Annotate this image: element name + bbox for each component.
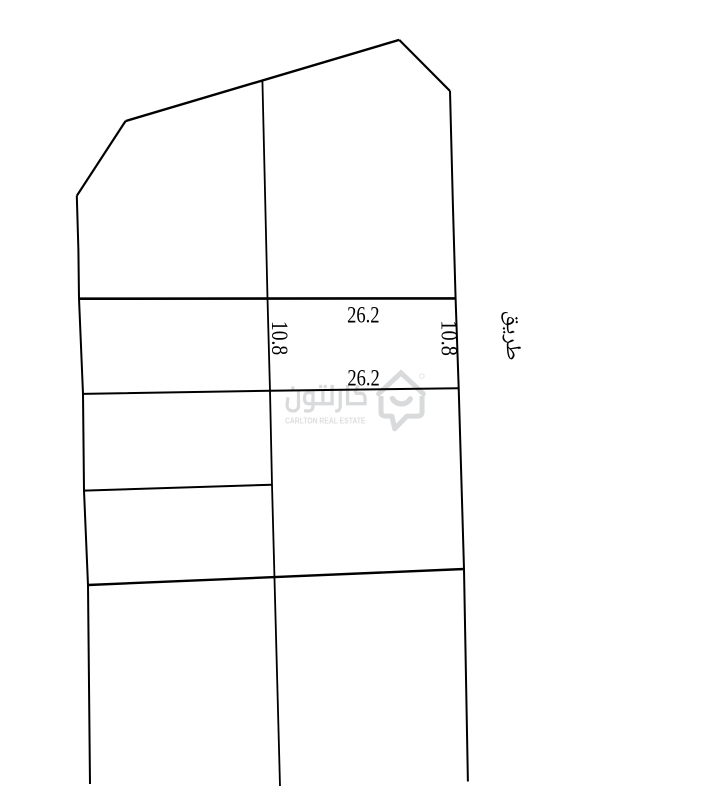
svg-text:10.8: 10.8: [435, 320, 461, 356]
svg-text:CARLTON REAL ESTATE: CARLTON REAL ESTATE: [285, 416, 366, 425]
svg-text:26.2: 26.2: [347, 303, 379, 329]
svg-text:26.2: 26.2: [347, 366, 379, 392]
svg-text:10.8: 10.8: [266, 321, 292, 355]
